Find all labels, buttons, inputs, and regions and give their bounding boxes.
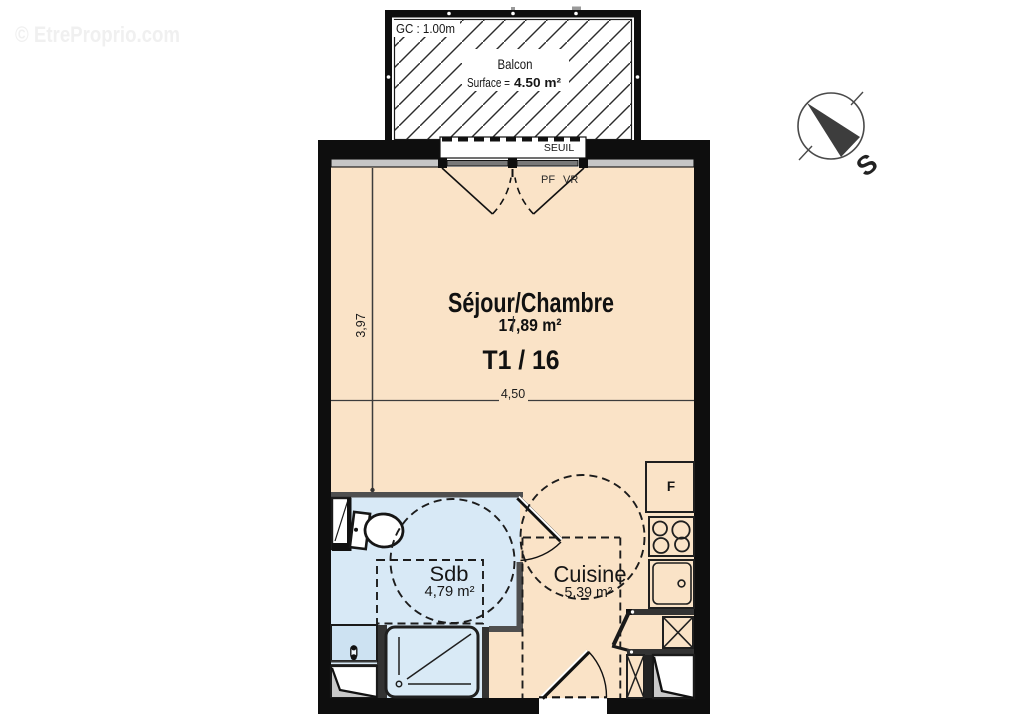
svg-text:Balcon: Balcon — [498, 56, 533, 72]
svg-text:Cuisine: Cuisine — [554, 561, 627, 587]
svg-text:GC : 1.00m: GC : 1.00m — [396, 22, 455, 36]
svg-text:4.50 m²: 4.50 m² — [514, 75, 562, 90]
svg-text:4,50: 4,50 — [501, 387, 525, 401]
svg-text:F: F — [667, 479, 675, 494]
svg-text:PF: PF — [541, 174, 555, 186]
svg-text:VR: VR — [563, 174, 578, 186]
svg-text:5,39 m²: 5,39 m² — [565, 585, 613, 601]
svg-text:Sdb: Sdb — [430, 562, 469, 586]
svg-text:Séjour/Chambre: Séjour/Chambre — [448, 287, 614, 318]
svg-text:© EtreProprio.com: © EtreProprio.com — [15, 22, 180, 47]
svg-text:SEUIL: SEUIL — [544, 142, 575, 154]
svg-text:17,89 m²: 17,89 m² — [499, 315, 562, 335]
svg-text:T1 / 16: T1 / 16 — [483, 345, 560, 375]
svg-text:3,97: 3,97 — [354, 313, 368, 337]
svg-text:Surface =: Surface = — [467, 75, 510, 90]
svg-text:4,79 m²: 4,79 m² — [425, 584, 475, 600]
